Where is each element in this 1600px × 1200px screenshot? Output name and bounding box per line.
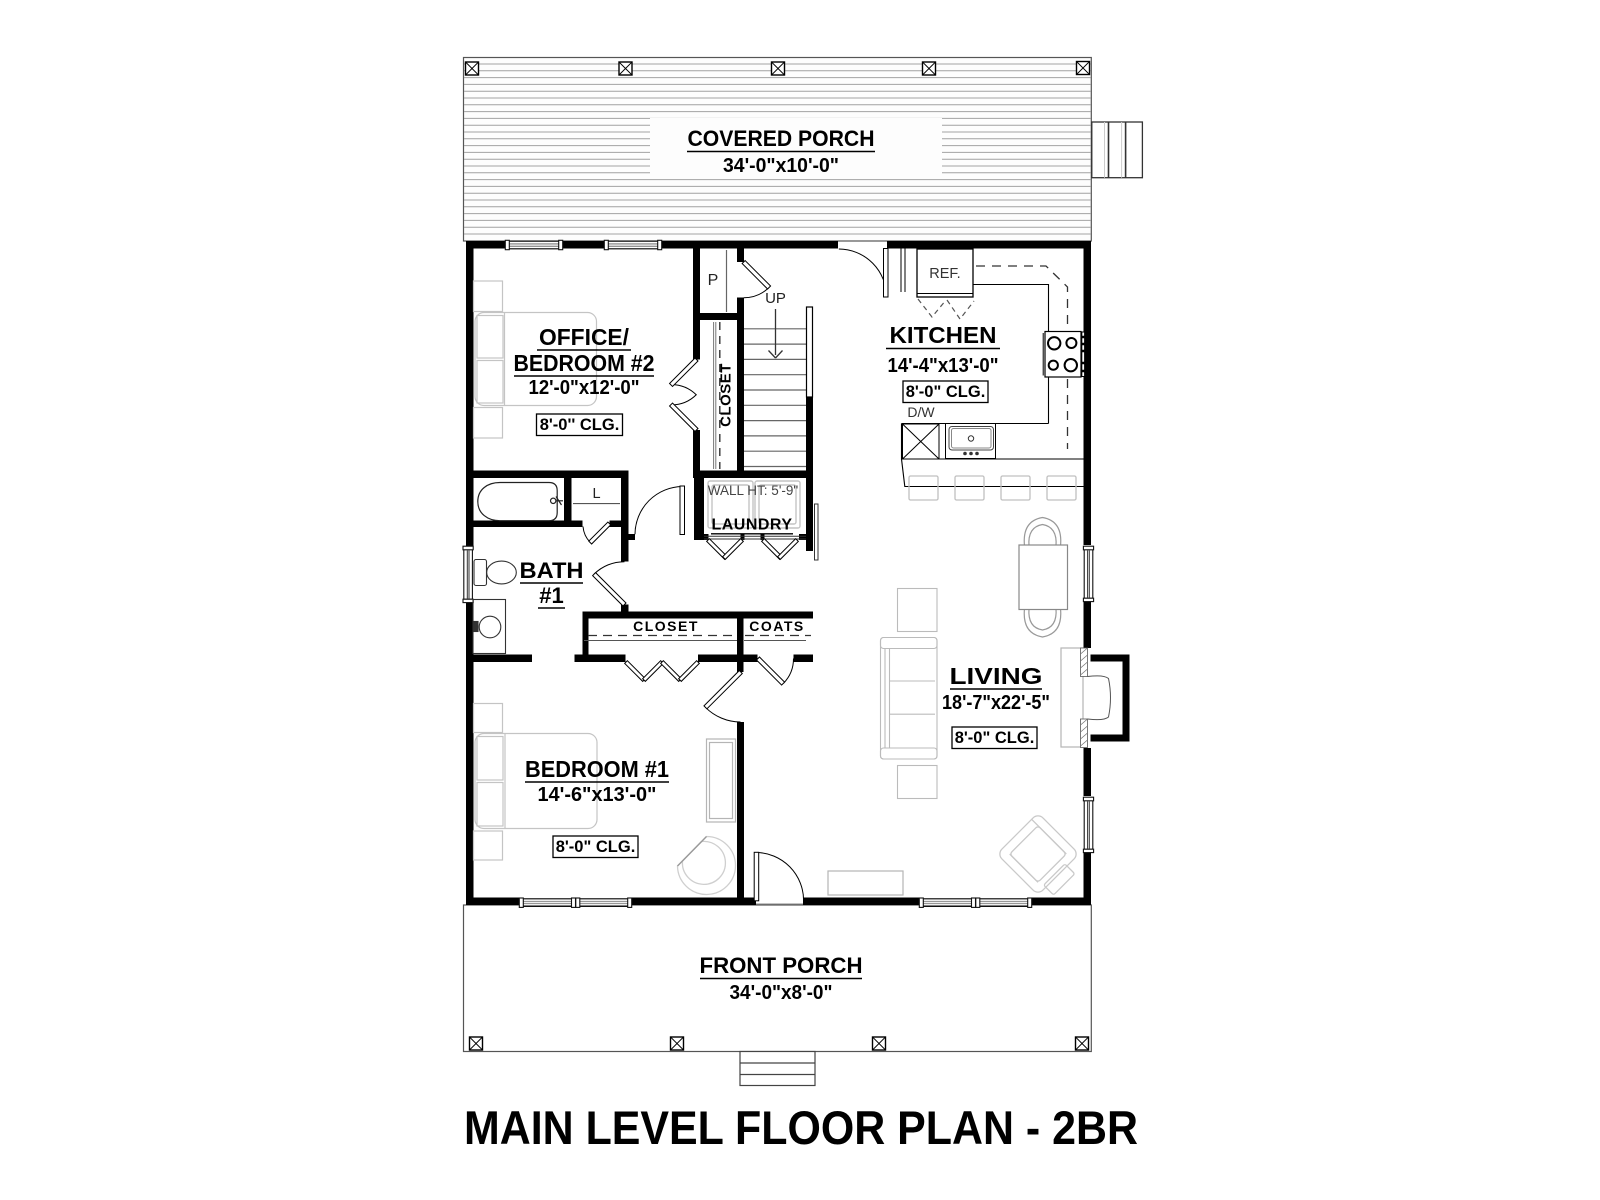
svg-text:8'-0" CLG.: 8'-0" CLG.	[906, 383, 986, 401]
svg-text:D/W: D/W	[907, 404, 935, 420]
svg-text:BEDROOM #2: BEDROOM #2	[514, 350, 655, 376]
svg-text:L: L	[592, 486, 600, 502]
svg-text:8'-0" CLG.: 8'-0" CLG.	[955, 729, 1035, 747]
svg-text:BATH: BATH	[520, 558, 584, 583]
svg-text:12'-0"x12'-0": 12'-0"x12'-0"	[529, 377, 640, 399]
svg-text:8'-0'' CLG.: 8'-0'' CLG.	[540, 416, 620, 434]
svg-text:OFFICE/: OFFICE/	[539, 324, 630, 350]
svg-text:UP: UP	[765, 290, 786, 307]
svg-text:CLOSET: CLOSET	[718, 363, 735, 427]
svg-text:P: P	[708, 272, 719, 289]
svg-text:FRONT PORCH: FRONT PORCH	[700, 953, 863, 978]
svg-text:LIVING: LIVING	[950, 663, 1043, 689]
svg-text:CLOSET: CLOSET	[633, 618, 699, 634]
svg-text:COATS: COATS	[749, 618, 804, 634]
svg-text:34'-0"x8'-0": 34'-0"x8'-0"	[730, 982, 833, 1004]
svg-text:COVERED PORCH: COVERED PORCH	[688, 126, 875, 151]
svg-text:MAIN LEVEL FLOOR PLAN - 2BR: MAIN LEVEL FLOOR PLAN - 2BR	[464, 1101, 1138, 1154]
svg-text:14'-6"x13'-0": 14'-6"x13'-0"	[538, 784, 657, 806]
svg-text:WALL HT: 5'-9": WALL HT: 5'-9"	[708, 483, 799, 498]
svg-text:KITCHEN: KITCHEN	[890, 322, 997, 348]
svg-text:REF.: REF.	[929, 266, 960, 282]
svg-text:#1: #1	[539, 583, 563, 608]
svg-text:18'-7"x22'-5": 18'-7"x22'-5"	[942, 692, 1050, 714]
svg-text:34'-0"x10'-0": 34'-0"x10'-0"	[723, 155, 839, 177]
svg-text:BEDROOM #1: BEDROOM #1	[525, 756, 669, 782]
svg-text:LAUNDRY: LAUNDRY	[711, 517, 792, 534]
svg-text:14'-4"x13'-0": 14'-4"x13'-0"	[888, 355, 999, 377]
svg-text:8'-0" CLG.: 8'-0" CLG.	[556, 838, 636, 856]
